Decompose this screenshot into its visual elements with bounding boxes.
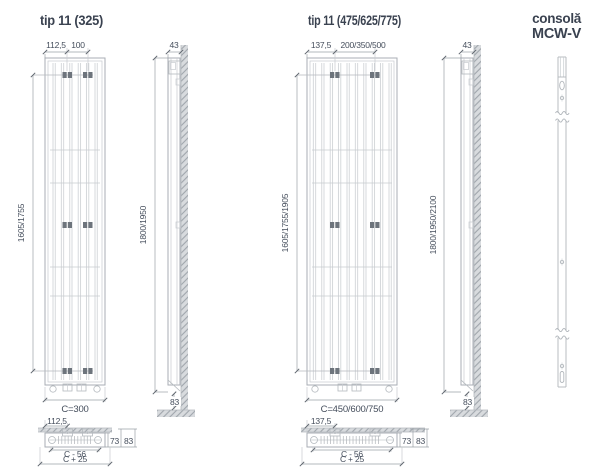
panel-left-title: tip 11 (325) (40, 13, 103, 28)
dim-left-plan-offset: 112,5 (47, 416, 67, 426)
left-plan-bottom-dims: C - 56 C + 25 (38, 447, 112, 466)
dim-left-plan-83: 83 (124, 436, 134, 446)
left-front-width-dim: C=300 (43, 387, 107, 415)
panel-middle-title: tip 11 (475/625/775) (308, 13, 401, 28)
dim-left-height-inner: 1605/1755 (16, 203, 26, 242)
dim-middle-height-total: 1800/1950/2100 (428, 195, 438, 254)
floor-section (157, 410, 195, 417)
dim-left-height-total: 1800/1950 (138, 205, 148, 244)
left-side-floorgap-dim: 83 (168, 392, 181, 411)
left-plan-view: 112,5 73 83 C - 56 (38, 416, 137, 466)
break-symbol-lower (556, 328, 570, 331)
middle-side-view: 43 1800/1950/2100 83 (428, 40, 488, 417)
console-title-line1: consolă (532, 11, 582, 26)
dim-left-plan-cplus: C + 25 (63, 454, 88, 464)
middle-side-depth-dim: 43 (459, 40, 476, 58)
middle-side-floorgap-dim: 83 (461, 392, 474, 411)
drawing-svg: tip 11 (325) (0, 0, 600, 476)
slot-detail (560, 372, 564, 383)
dim-left-floorgap: 83 (170, 397, 180, 407)
left-side-depth-dim: 43 (166, 40, 183, 58)
dim-middle-span: 200/350/500 (340, 40, 386, 50)
dim-middle-plan-cplus: C + 25 (340, 454, 365, 464)
panel-console: consolă MCW-V (532, 11, 582, 387)
break-symbol-upper (556, 111, 570, 114)
dim-middle-floorgap: 83 (463, 397, 473, 407)
hook-detail (560, 81, 565, 90)
dim-middle-plan-83: 83 (416, 436, 426, 446)
left-side-view: 43 1800/1950 83 (138, 40, 195, 417)
wall-section (181, 45, 188, 410)
middle-plan-view: 137,5 73 83 C - 56 (300, 416, 429, 466)
console-title-line2: MCW-V (532, 26, 582, 42)
dim-middle-height-inner: 1605/1755/1905 (280, 193, 290, 252)
wall-section (474, 45, 481, 410)
middle-side-height-dim: 1800/1950/2100 (428, 56, 461, 394)
dim-left-offset: 112,5 (46, 40, 66, 50)
panel-left: tip 11 (325) (16, 13, 195, 466)
dim-left-plan-73: 73 (110, 436, 120, 446)
radiator-technical-drawing: tip 11 (325) (0, 0, 600, 476)
console-rail-drawing (556, 57, 570, 387)
dim-left-span: 100 (71, 40, 85, 50)
dim-middle-plan-offset: 137,5 (311, 416, 332, 426)
dim-left-depth: 43 (169, 40, 179, 50)
dim-middle-width: C=450/600/750 (321, 404, 384, 415)
dim-middle-offset: 137,5 (311, 40, 332, 50)
left-front-height-dim: 1605/1755 (16, 73, 35, 373)
floor-section (450, 410, 488, 417)
middle-plan-bottom-dims: C - 56 C + 25 (300, 447, 404, 466)
dim-middle-depth: 43 (462, 40, 472, 50)
dim-left-width: C=300 (61, 404, 88, 415)
left-side-height-dim: 1800/1950 (138, 56, 168, 394)
middle-front-view: 137,5 200/350/500 1605/1755/1905 C=450/6… (280, 40, 399, 415)
middle-front-height-dim: 1605/1755/1905 (280, 73, 299, 373)
left-front-view: 112,5 100 1605/1755 C=300 (16, 40, 107, 415)
dim-middle-plan-73: 73 (402, 436, 412, 446)
panel-middle: tip 11 (475/625/775) (280, 13, 488, 466)
